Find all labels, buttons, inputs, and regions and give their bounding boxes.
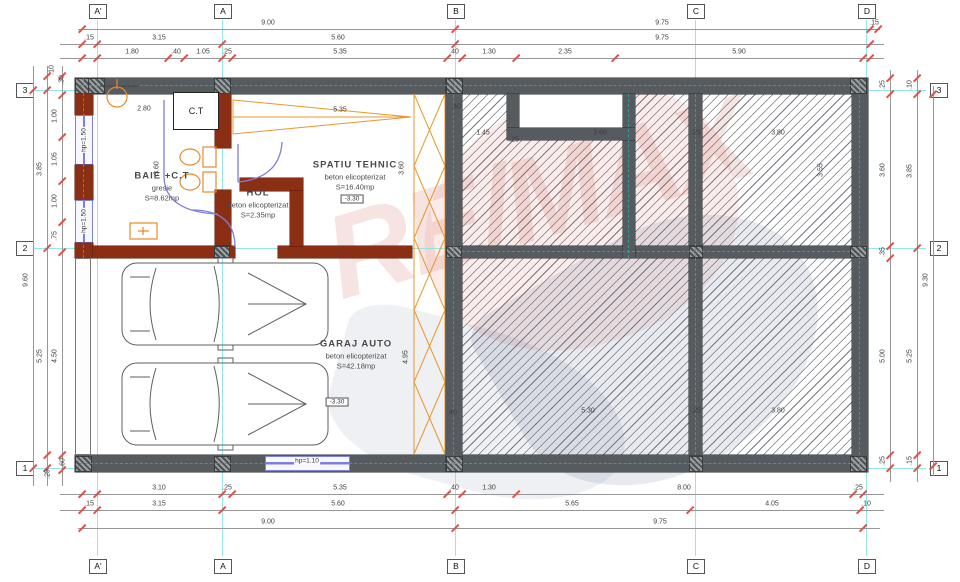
interior-dimension-label: 3.60 [399,161,406,175]
room-name-label: GARAJ AUTO [320,339,392,350]
grid-bubble-A: A [214,559,232,574]
dimension-label: 3.85 [907,164,914,178]
dimension-label: 1.00 [52,109,59,123]
interior-dimension-label: 2.80 [137,106,151,113]
window-height-label: hp=1.50 [81,127,88,153]
interior-dimension-label: .25 [691,408,701,415]
dimension-label: 5.25 [907,349,914,363]
dimension-line [33,66,34,486]
interior-dimension-label: 5.30 [581,408,595,415]
dimension-label: 5.60 [331,35,345,42]
dimension-label: 9.75 [655,20,669,27]
dimension-line [933,86,934,476]
dimension-label: .25 [853,485,863,492]
dimension-line [78,528,880,529]
dimension-label: 3.60 [880,163,887,177]
dimension-label: .15 [907,456,914,466]
dimension-label: 1.00 [52,194,59,208]
dimension-label: 9.75 [655,35,669,42]
grid-bubble-D: D [858,4,876,19]
grid-bubble-2: 2 [16,241,34,256]
interior-dimension-label: 3.60 [593,130,607,137]
dimension-label: 1.80 [125,49,139,56]
room-finish-label: beton elicopterizat [325,173,386,182]
elevation-box: -3.30 [326,398,349,407]
grid-bubble-D: D [858,559,876,574]
room-area-label: S=42.18mp [337,362,376,371]
dimension-label: .25 [222,485,232,492]
dimension-line [890,70,891,482]
room-name-label: HOL [246,188,269,199]
interior-dimension-label: .60 [60,458,67,468]
dimension-label: 1.30 [482,485,496,492]
dimension-line [60,510,884,511]
interior-dimension-label: .10 [49,65,56,75]
interior-dimension-label: .25 [45,469,52,479]
room-finish-label: gresie [152,184,172,193]
interior-dimension-label: 4.95 [403,350,410,364]
interior-dimension-label: 1.45 [476,130,490,137]
interior-dimension-label: .40 [447,410,457,417]
dimension-label: .15 [84,501,94,508]
dimension-label: .25 [880,80,887,90]
room-finish-label: beton elicopterizat [326,352,387,361]
dimension-label: 5.35 [333,49,347,56]
dimension-line [47,66,48,486]
dimension-label: 1.05 [52,152,59,166]
dimension-label: .15 [869,20,879,27]
dimension-label: 5.00 [880,349,887,363]
dimension-label: 5.25 [37,349,44,363]
dimension-label: .75 [52,231,59,241]
dimension-label: 3.15 [152,501,166,508]
dimension-label: .40 [171,49,181,56]
elevation-box: -3.30 [341,195,364,204]
dimension-label: 9.75 [653,519,667,526]
interior-dimension-label: 3.80 [771,130,785,137]
grid-bubble-A': A' [89,559,107,574]
dimension-line [917,70,918,482]
dimension-line [62,66,63,486]
dimension-label: 9.30 [923,273,930,287]
room-area-label: S=2.35mp [241,211,275,220]
dimension-label: 2.35 [558,49,572,56]
dimension-label: .40 [449,49,459,56]
dimension-line [60,44,884,45]
grid-bubble-C: C [687,559,705,574]
room-area-label: S=8.62mp [145,194,179,203]
grid-bubble-A': A' [89,4,107,19]
dimension-label: 4.50 [52,349,59,363]
dimension-label: 3.10 [152,485,166,492]
dimension-label: .40 [449,485,459,492]
dimension-label: 9.00 [261,20,275,27]
room-area-label: S=16.40mp [336,183,375,192]
interior-dimension-label: .40 [451,104,461,111]
dimension-label: 9.60 [23,273,30,287]
dimension-label: .10 [907,80,914,90]
dimension-label: 3.15 [152,35,166,42]
grid-bubble-B: B [447,4,465,19]
dimension-label: 5.90 [732,49,746,56]
dimension-line [60,494,884,495]
dimension-label: 1.05 [196,49,210,56]
window-height-label: hp=1.10 [294,458,320,465]
dimension-label: .35 [880,247,887,257]
dimension-label: 5.60 [331,501,345,508]
interior-dimension-label: .30 [59,75,66,85]
dimension-label: 5.35 [333,485,347,492]
interior-dimension-label: 3.80 [771,408,785,415]
room-name-label: SPATIU TEHNIC [313,160,397,171]
annotations-layer: A'A'AABBCCDD3322119.009.75.15.153.155.60… [0,0,960,582]
interior-dimension-label: .25 [691,130,701,137]
interior-dimension-label: 3.55 [818,163,825,177]
dimension-label: 4.05 [765,501,779,508]
floor-plan-canvas: RE/MAX C.T [0,0,960,582]
dimension-label: .10 [861,501,871,508]
dimension-label: 8.00 [677,485,691,492]
grid-bubble-B: B [447,559,465,574]
room-name-label: BAIE +C.T [134,171,189,182]
window-height-label: hp=1.50 [81,208,88,234]
dimension-line [78,29,880,30]
interior-dimension-label: 5.35 [333,107,347,114]
dimension-label: 3.85 [37,162,44,176]
dimension-label: .25 [222,49,232,56]
dimension-label: 9.00 [261,519,275,526]
interior-dimension-label: .25 [509,137,519,144]
grid-bubble-C: C [687,4,705,19]
dimension-label: .15 [84,35,94,42]
dimension-label: .25 [880,456,887,466]
dimension-label: 5.65 [565,501,579,508]
dimension-label: 1.30 [482,49,496,56]
room-finish-label: beton elicopterizat [228,201,289,210]
grid-bubble-A: A [214,4,232,19]
